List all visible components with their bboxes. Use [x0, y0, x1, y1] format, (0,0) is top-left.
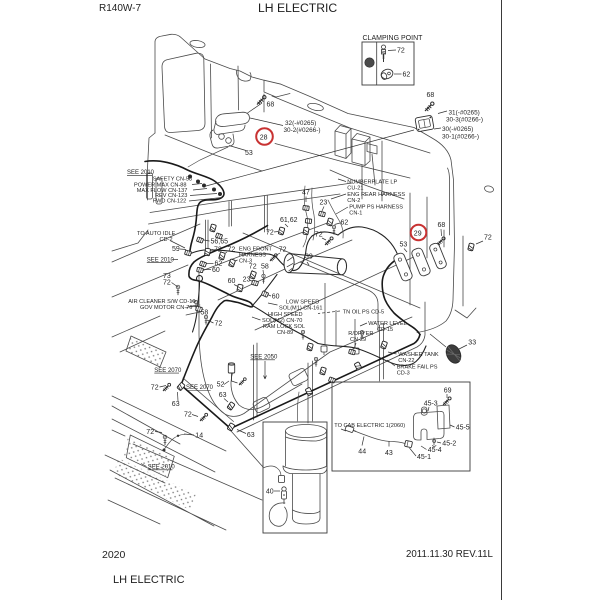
svg-text:60: 60: [272, 294, 280, 301]
svg-text:62: 62: [403, 72, 411, 79]
svg-text:72: 72: [397, 48, 405, 55]
svg-text:30-2(#0266-): 30-2(#0266-): [284, 127, 321, 134]
svg-text:72: 72: [266, 230, 274, 237]
svg-text:60: 60: [212, 267, 220, 274]
svg-text:29: 29: [414, 231, 422, 238]
svg-text:FWD CN-122: FWD CN-122: [153, 199, 187, 205]
svg-text:58: 58: [261, 264, 269, 271]
svg-text:45-1: 45-1: [417, 454, 431, 461]
svg-text:40: 40: [266, 489, 274, 496]
svg-text:2011.11.30 REV.11L: 2011.11.30 REV.11L: [406, 549, 494, 560]
svg-text:28: 28: [260, 135, 268, 142]
svg-text:60: 60: [228, 278, 236, 285]
svg-text:33: 33: [468, 340, 476, 347]
svg-text:TN OIL PS CD-5: TN OIL PS CD-5: [343, 309, 384, 315]
svg-text:68: 68: [267, 102, 275, 109]
svg-text:72: 72: [484, 235, 492, 242]
svg-text:59: 59: [172, 246, 180, 253]
svg-text:72: 72: [249, 264, 257, 271]
svg-text:R140W-7: R140W-7: [99, 3, 141, 14]
svg-text:TO CAB ELECTRIC 1(2060): TO CAB ELECTRIC 1(2060): [334, 423, 405, 429]
svg-text:72: 72: [279, 247, 287, 254]
svg-text:72: 72: [215, 321, 223, 328]
svg-text:72: 72: [184, 412, 192, 419]
svg-text:47: 47: [302, 190, 310, 197]
svg-text:LH ELECTRIC: LH ELECTRIC: [113, 574, 185, 586]
svg-text:30(-#0265): 30(-#0265): [442, 126, 473, 133]
svg-text:72: 72: [315, 232, 323, 239]
svg-text:CLAMPING POINT: CLAMPING POINT: [363, 35, 424, 42]
svg-text:30-1(#0266-): 30-1(#0266-): [442, 134, 479, 141]
svg-text:52: 52: [217, 382, 225, 389]
svg-text:63: 63: [219, 392, 227, 399]
svg-text:14: 14: [195, 433, 203, 440]
svg-text:72: 72: [163, 279, 171, 286]
svg-text:61,62: 61,62: [280, 217, 298, 224]
svg-text:62: 62: [341, 220, 349, 227]
svg-text:CN-2: CN-2: [347, 198, 360, 204]
svg-text:69: 69: [444, 388, 452, 395]
svg-text:CN-1: CN-1: [349, 211, 362, 217]
svg-text:72: 72: [151, 385, 159, 392]
svg-text:CN-22: CN-22: [398, 358, 414, 364]
svg-text:23: 23: [243, 277, 251, 284]
svg-text:68: 68: [427, 92, 435, 99]
svg-text:23: 23: [320, 200, 328, 207]
svg-text:LH ELECTRIC: LH ELECTRIC: [258, 1, 337, 15]
svg-text:68: 68: [438, 222, 446, 229]
svg-text:CD-15: CD-15: [377, 327, 393, 333]
svg-text:63: 63: [172, 401, 180, 408]
svg-text:39: 39: [305, 254, 313, 261]
svg-text:53: 53: [400, 242, 408, 249]
svg-text:44: 44: [358, 449, 366, 456]
svg-text:72: 72: [228, 247, 236, 254]
svg-text:CU-21: CU-21: [347, 186, 363, 192]
svg-text:32(-#0265): 32(-#0265): [285, 120, 316, 127]
svg-text:CD-2: CD-2: [160, 237, 173, 243]
svg-text:30-3(#0266-): 30-3(#0266-): [446, 117, 483, 124]
svg-text:SOL(M1) CN-161: SOL(M1) CN-161: [279, 306, 323, 312]
svg-text:31(-#0265): 31(-#0265): [449, 110, 480, 117]
svg-text:43: 43: [385, 450, 393, 457]
svg-text:CN-29: CN-29: [350, 337, 366, 343]
svg-text:53: 53: [245, 150, 253, 157]
svg-text:CD-3: CD-3: [397, 371, 410, 377]
svg-text:63: 63: [247, 432, 255, 439]
svg-text:72: 72: [146, 429, 154, 436]
svg-text:2020: 2020: [102, 549, 126, 561]
svg-text:45-3: 45-3: [424, 401, 438, 408]
svg-text:CN-89: CN-89: [277, 330, 293, 336]
svg-text:GOV MOTOR CN-76: GOV MOTOR CN-76: [140, 305, 192, 311]
svg-text:45-5: 45-5: [456, 425, 470, 432]
svg-text:56,65: 56,65: [211, 239, 229, 246]
svg-text:45-2: 45-2: [442, 441, 456, 448]
